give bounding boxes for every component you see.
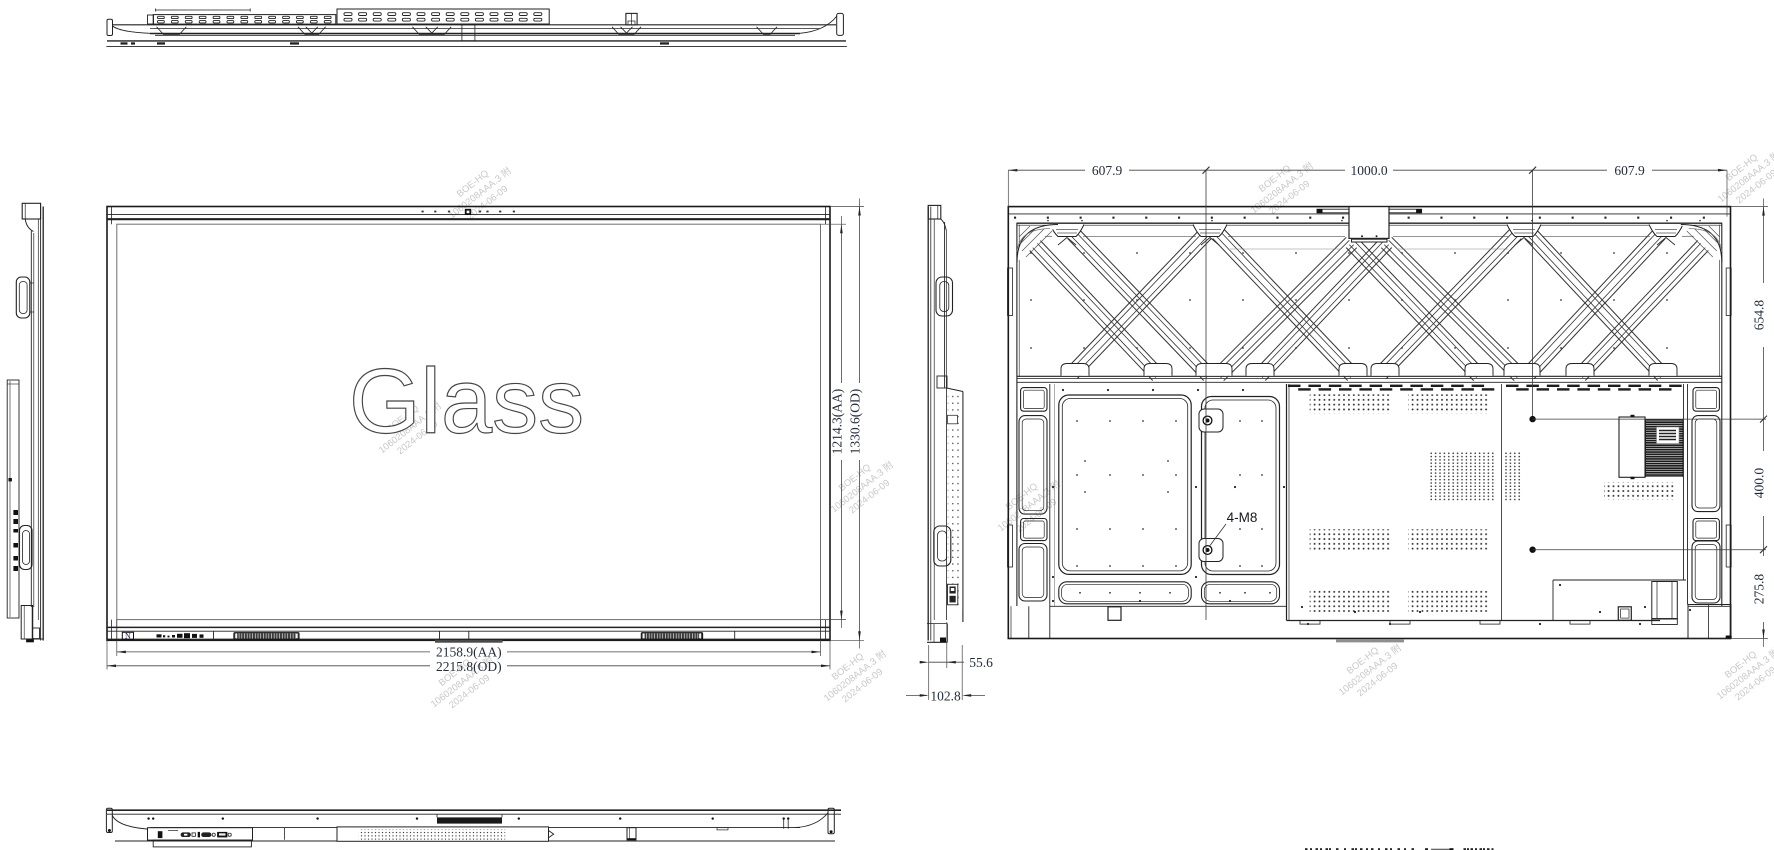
svg-text:Glass: Glass	[349, 351, 584, 453]
svg-text:654.8: 654.8	[1752, 300, 1767, 331]
svg-text:400.0: 400.0	[1752, 468, 1767, 499]
svg-text:N: N	[125, 632, 131, 641]
svg-text:275.8: 275.8	[1752, 574, 1767, 605]
svg-text:1330.6(OD): 1330.6(OD)	[848, 389, 863, 455]
svg-text:1000.0: 1000.0	[1350, 163, 1387, 178]
svg-text:55.6: 55.6	[969, 655, 993, 670]
svg-text:1214.3(AA): 1214.3(AA)	[829, 389, 844, 455]
svg-text:102.8: 102.8	[930, 688, 961, 703]
svg-text:2158.9(AA): 2158.9(AA)	[436, 645, 502, 660]
svg-text:4-M8: 4-M8	[1227, 510, 1258, 525]
svg-text:607.9: 607.9	[1614, 163, 1645, 178]
svg-text:607.9: 607.9	[1092, 163, 1123, 178]
svg-text:2215.8(OD): 2215.8(OD)	[436, 659, 502, 674]
